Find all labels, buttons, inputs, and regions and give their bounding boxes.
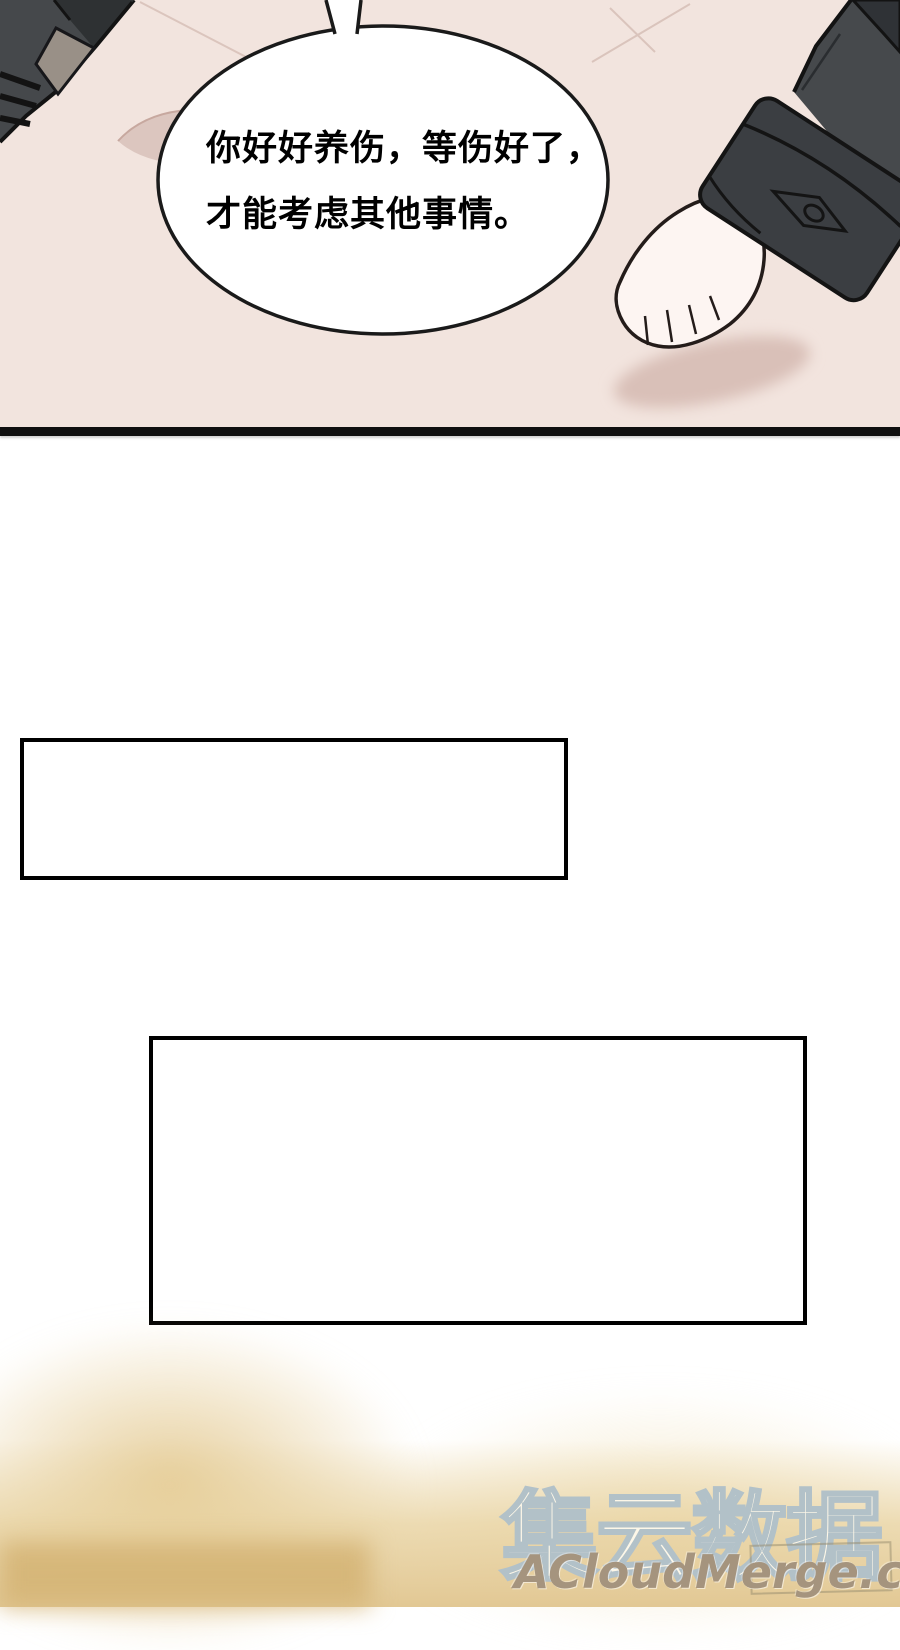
watermark-site-text: ACloudMerge.com bbox=[514, 1545, 900, 1599]
comic-page: 你好好养伤，等伤好了， 才能考虑其他事情。 集云数据 ACloudMerge.c… bbox=[0, 0, 900, 1607]
speech-bubble-text: 你好好养伤，等伤好了， 才能考虑其他事情。 bbox=[206, 116, 626, 248]
bubble-line-2: 才能考虑其他事情。 bbox=[206, 182, 626, 248]
top-panel: 你好好养伤，等伤好了， 才能考虑其他事情。 bbox=[0, 0, 900, 427]
empty-panel-box-1 bbox=[20, 738, 568, 880]
panel-divider-bar bbox=[0, 427, 900, 436]
bubble-line-1: 你好好养伤，等伤好了， bbox=[206, 116, 626, 182]
bottom-corner-shade bbox=[0, 1542, 370, 1607]
empty-panel-box-2 bbox=[149, 1036, 807, 1325]
